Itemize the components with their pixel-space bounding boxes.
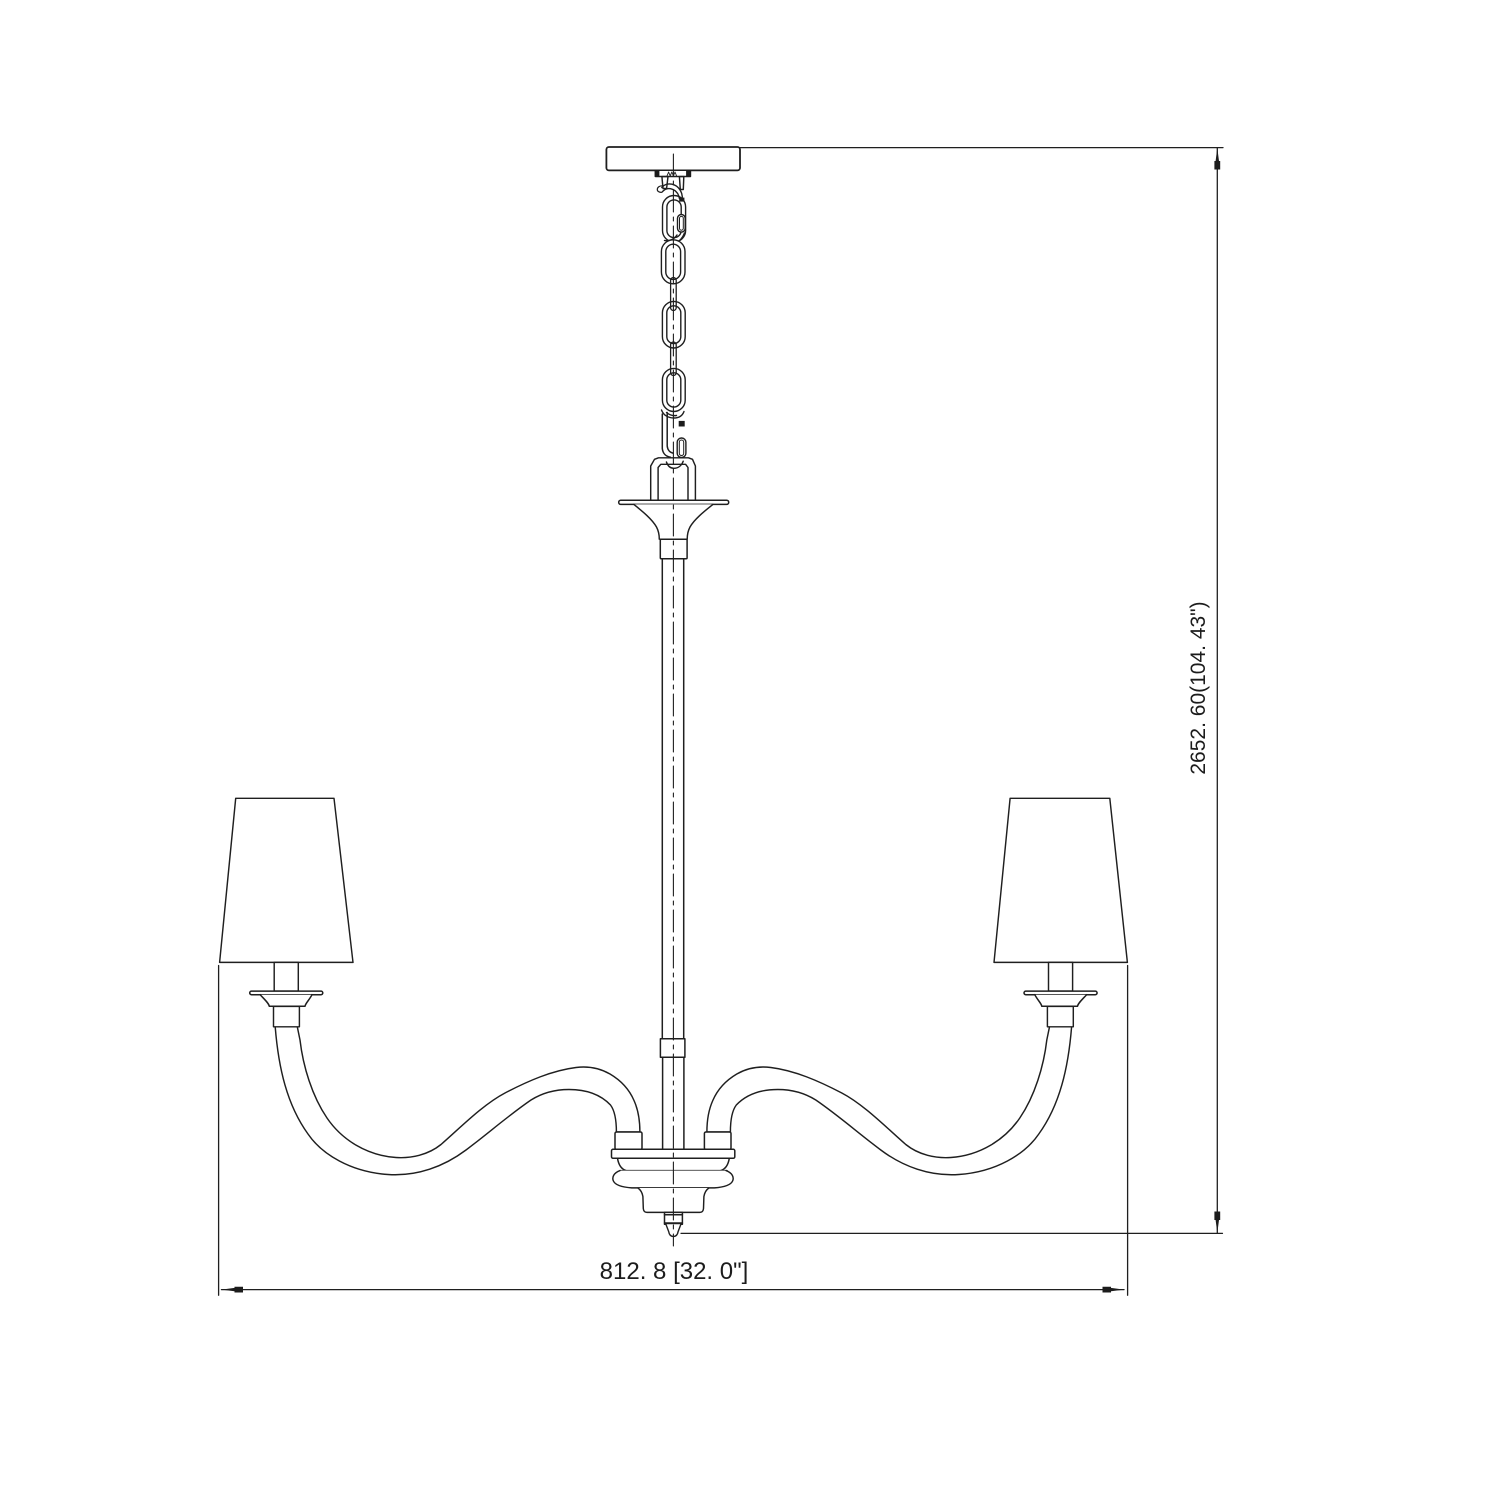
svg-text:2652. 60(104. 43"): 2652. 60(104. 43"): [1187, 601, 1210, 774]
svg-text:812. 8 [32. 0"]: 812. 8 [32. 0"]: [600, 1258, 749, 1285]
